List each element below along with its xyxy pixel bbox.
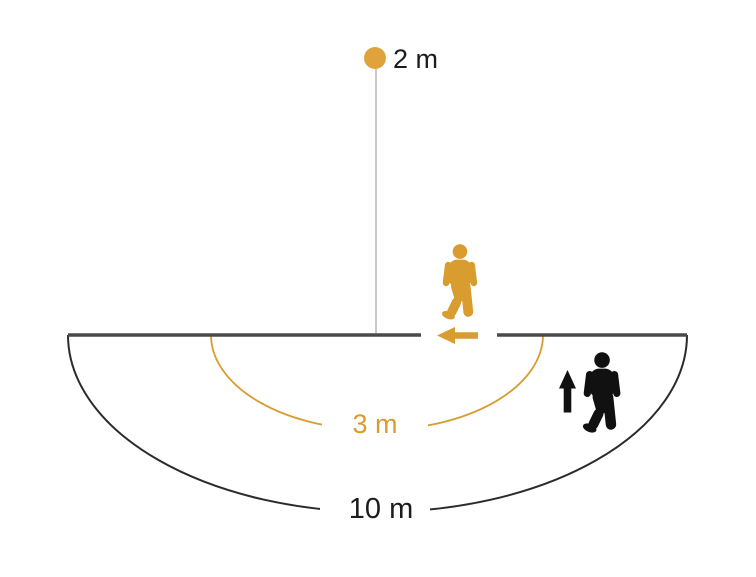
mounting-height-label: 2 m — [393, 44, 438, 74]
inner-radius-label: 3 m — [352, 409, 397, 439]
outer-radius-label: 10 m — [349, 493, 413, 525]
arrow-up-icon — [559, 370, 576, 413]
walking-person-approaching-icon — [441, 244, 478, 321]
detection-range-diagram: 2 m 3 m 10 m — [0, 0, 756, 577]
walking-person-crossing-icon — [582, 352, 621, 434]
sensor-dot-icon — [364, 47, 386, 69]
